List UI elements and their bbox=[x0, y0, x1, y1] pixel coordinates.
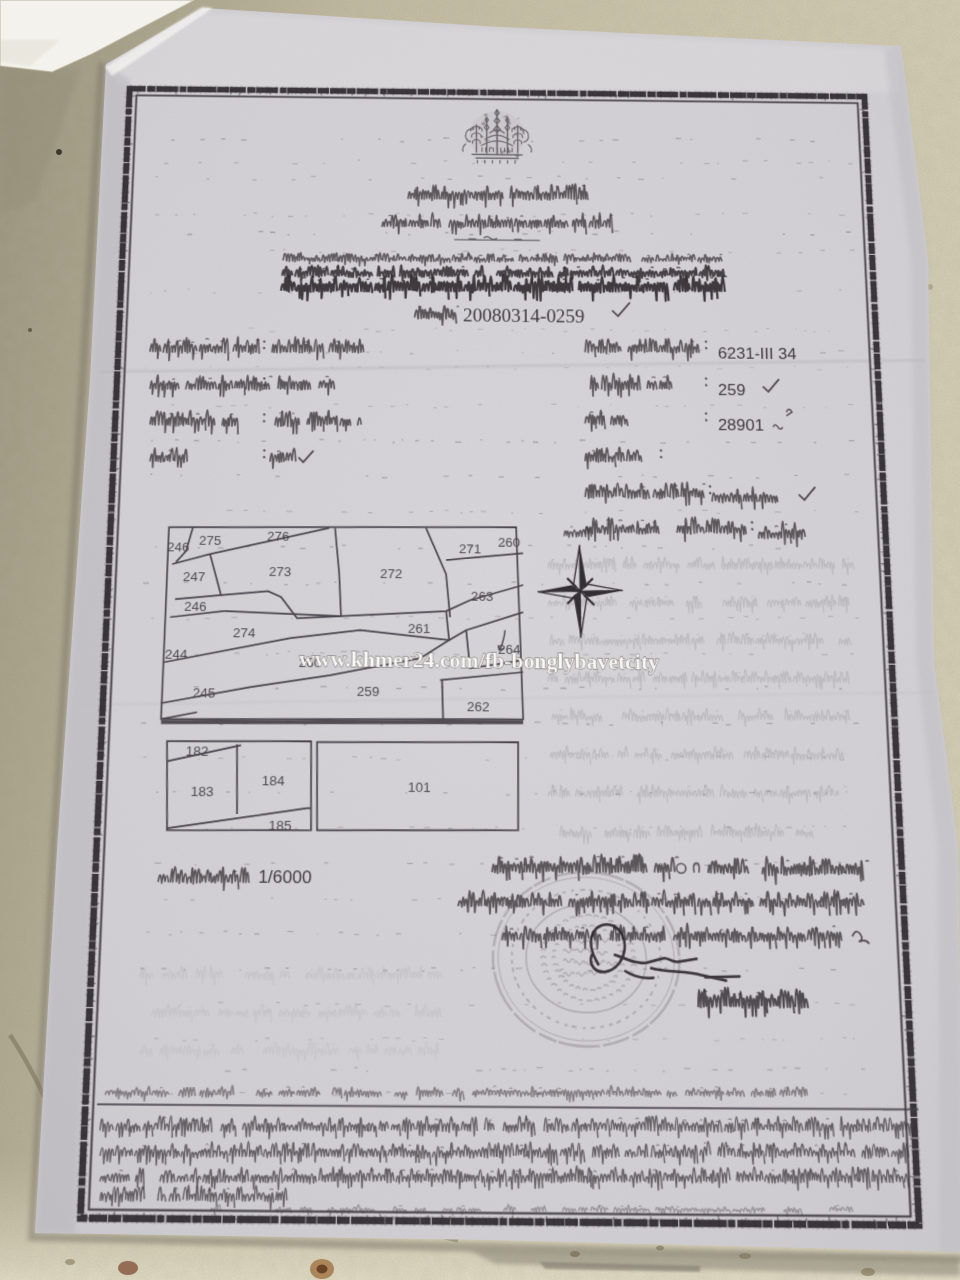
svg-text:260: 260 bbox=[498, 535, 521, 550]
svg-text:246: 246 bbox=[167, 539, 190, 554]
svg-text:271: 271 bbox=[459, 541, 482, 556]
svg-text:6231-III 34: 6231-III 34 bbox=[718, 345, 797, 363]
svg-text:272: 272 bbox=[380, 566, 403, 582]
svg-text:275: 275 bbox=[199, 533, 222, 548]
svg-text:1/6000: 1/6000 bbox=[258, 867, 312, 887]
svg-text:246: 246 bbox=[184, 599, 207, 615]
svg-text:263: 263 bbox=[471, 589, 494, 605]
svg-text:259: 259 bbox=[357, 684, 380, 700]
svg-text:185: 185 bbox=[268, 817, 292, 833]
svg-text:244: 244 bbox=[165, 647, 188, 663]
svg-text:273: 273 bbox=[269, 564, 292, 580]
svg-text:274: 274 bbox=[233, 625, 256, 641]
svg-text:www.khmer24.com/fb-bonglybavet: www.khmer24.com/fb-bonglybavetcity bbox=[299, 647, 660, 675]
svg-text:20080314-0259: 20080314-0259 bbox=[463, 305, 585, 327]
svg-text:183: 183 bbox=[190, 783, 214, 799]
svg-text:184: 184 bbox=[262, 772, 286, 788]
svg-text:182: 182 bbox=[186, 744, 210, 760]
svg-text:261: 261 bbox=[408, 621, 431, 637]
svg-text:245: 245 bbox=[193, 685, 216, 701]
svg-text:101: 101 bbox=[408, 780, 431, 796]
svg-text:262: 262 bbox=[467, 699, 490, 715]
svg-text:247: 247 bbox=[183, 569, 206, 585]
svg-text:259: 259 bbox=[718, 382, 746, 400]
svg-text:28901: 28901 bbox=[718, 416, 765, 434]
svg-text:276: 276 bbox=[267, 529, 290, 544]
